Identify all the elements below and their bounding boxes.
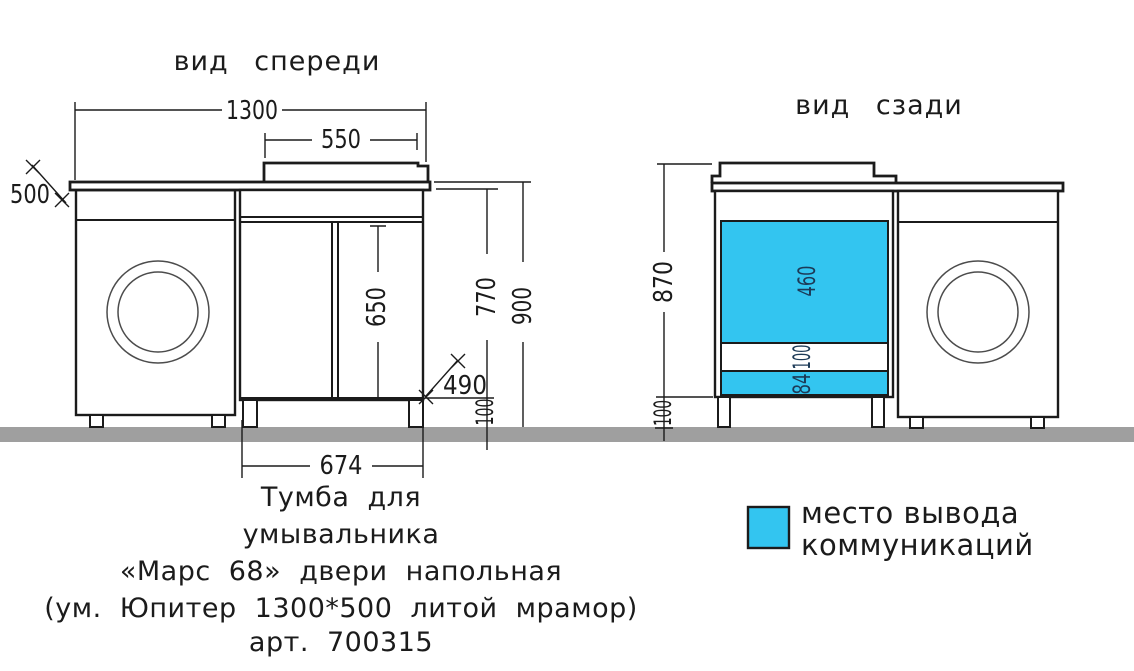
dim-770-label: 770 (472, 277, 502, 317)
countertop-back (712, 163, 1063, 191)
back-dimensions: 870 100 (649, 164, 713, 441)
dim-490-label: 490 (443, 371, 487, 401)
dim-100-front: 100 (471, 399, 499, 426)
cabinet-front (240, 190, 423, 427)
dim-500-label: 500 (10, 180, 50, 210)
legend-text-line2: коммуникаций (801, 528, 1034, 562)
dim-460-label: 460 (793, 266, 821, 297)
dim-900-label: 900 (508, 287, 538, 325)
dim-674-label: 674 (320, 451, 363, 481)
cabinet-leg (872, 397, 884, 427)
washer-foot (212, 415, 225, 427)
legend: место вывода коммуникаций (748, 496, 1034, 562)
vanity-technical-drawing: вид спереди (0, 0, 1134, 671)
cabinet-leg (243, 400, 257, 427)
dim-650-label: 650 (362, 287, 392, 327)
front-view: вид спереди (10, 46, 538, 481)
legend-swatch (748, 507, 789, 548)
caption-line-4: (ум. Юпитер 1300*500 литой мрамор) (44, 593, 638, 624)
back-view: вид сзади 460 100 84 (649, 90, 1063, 441)
drawing-canvas: вид спереди (0, 0, 1134, 671)
washer-foot (1031, 417, 1044, 428)
washer-foot (90, 415, 103, 427)
dim-100-back-label: 100 (649, 400, 677, 426)
back-view-title: вид сзади (795, 90, 963, 121)
caption-line-1: Тумба для (260, 482, 421, 513)
floor-line (0, 427, 1134, 442)
dim-1300: 1300 (75, 96, 426, 180)
washing-machine-front (76, 190, 235, 427)
washing-machine-back (898, 191, 1058, 428)
product-caption: Тумба для умывальника «Марс 68» двери на… (44, 482, 638, 658)
cabinet-leg (409, 400, 423, 427)
dim-84-label: 84 (788, 374, 816, 395)
countertop-front (70, 163, 430, 190)
dim-550: 550 (265, 125, 417, 158)
washer-body (76, 190, 235, 415)
dim-490-detail: 490 (419, 354, 494, 404)
caption-line-2: умывальника (243, 519, 440, 550)
sink-raised-section (712, 163, 896, 183)
dim-100-gap-label: 100 (788, 345, 816, 370)
dim-100-front-label: 100 (471, 399, 499, 426)
cabinet-leg (718, 397, 730, 427)
caption-line-5: арт. 700315 (249, 627, 433, 658)
dim-1300-label: 1300 (226, 96, 278, 126)
dim-870: 870 (649, 164, 713, 397)
caption-line-3: «Марс 68» двери напольная (120, 556, 562, 587)
legend-text-line1: место вывода (801, 496, 1019, 530)
dim-500-depth: 500 (10, 160, 69, 210)
front-view-title: вид спереди (174, 46, 381, 77)
dim-870-label: 870 (649, 261, 679, 303)
dim-550-label: 550 (321, 125, 361, 155)
washer-body (898, 191, 1058, 417)
washer-foot (910, 417, 923, 428)
sink-raised-section (264, 163, 428, 182)
cabinet-back: 460 100 84 (715, 191, 893, 427)
